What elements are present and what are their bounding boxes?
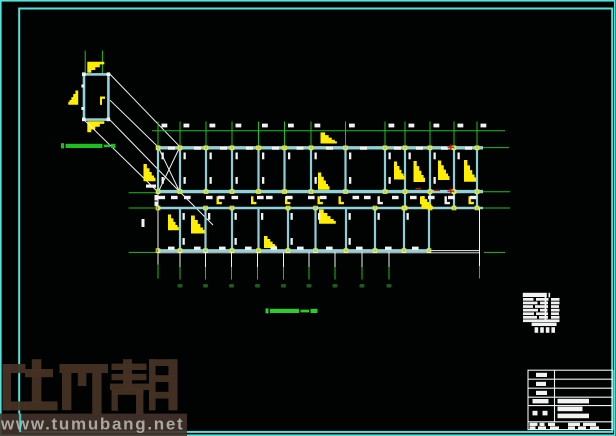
svg-text:www.tumubang.net: www.tumubang.net xyxy=(0,415,184,434)
